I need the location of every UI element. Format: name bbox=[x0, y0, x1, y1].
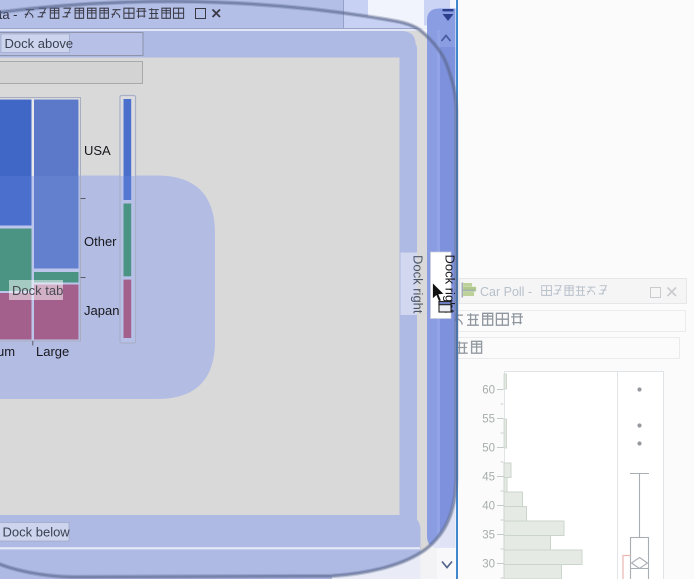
svg-text:Dock above: Dock above bbox=[5, 36, 74, 51]
svg-text:Dock tab: Dock tab bbox=[12, 283, 63, 298]
svg-text:Dock right: Dock right bbox=[411, 255, 426, 314]
svg-text:Dock below: Dock below bbox=[3, 525, 71, 540]
